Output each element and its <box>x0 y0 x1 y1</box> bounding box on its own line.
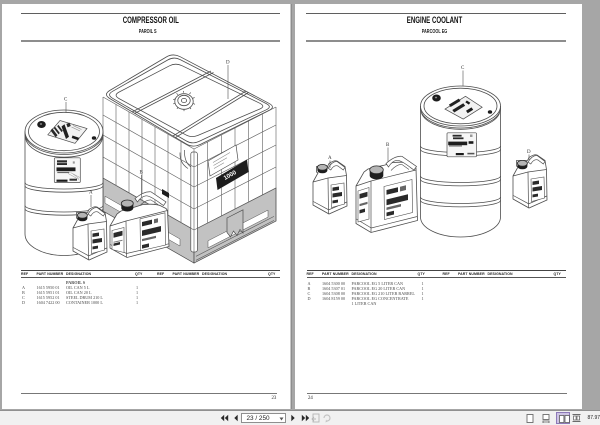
svg-text:D: D <box>527 150 531 155</box>
svg-text:C: C <box>461 66 465 71</box>
svg-text:B: B <box>386 143 390 148</box>
svg-text:A: A <box>328 156 332 161</box>
